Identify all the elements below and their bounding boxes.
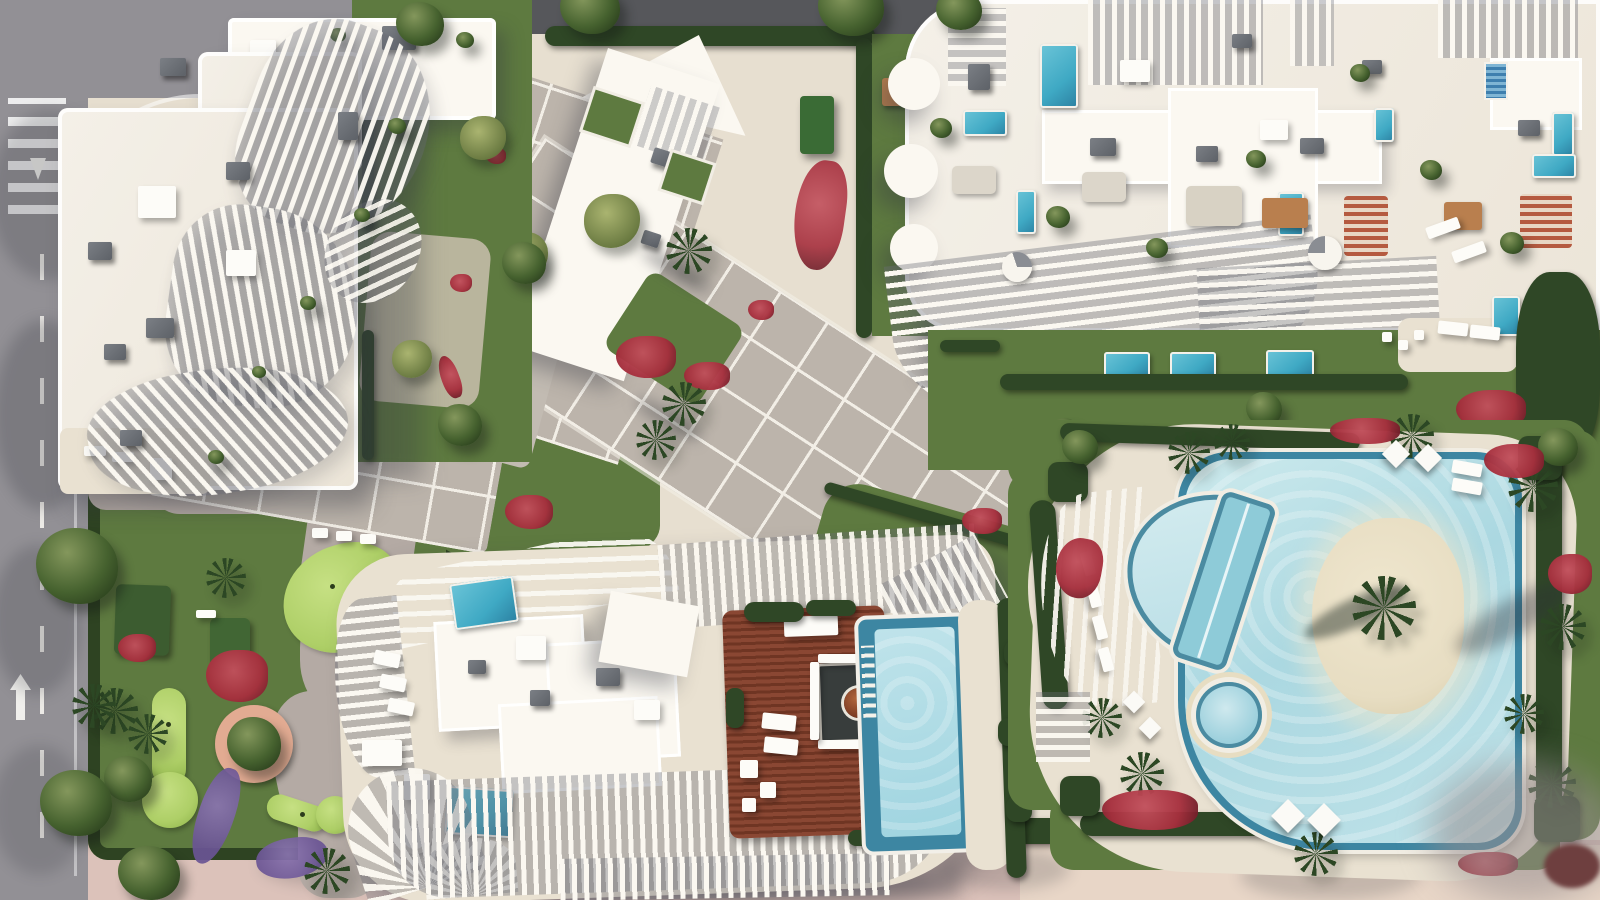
- palm-tree: [206, 558, 246, 598]
- lounge-rug: [1186, 186, 1242, 226]
- terracotta-rug: [1344, 196, 1388, 256]
- roof-cube: [138, 186, 176, 218]
- tree: [1538, 428, 1578, 466]
- terrace-plant: [930, 118, 952, 138]
- plunge-pool: [1532, 154, 1576, 178]
- roof-vent-box: [1232, 34, 1252, 48]
- terrace-plant: [1046, 206, 1070, 228]
- road-arrow: [16, 688, 25, 720]
- roof-vent-box: [1300, 138, 1324, 154]
- plunge-pool: [1552, 112, 1574, 156]
- lounger: [312, 528, 328, 538]
- palm-tree: [666, 228, 712, 274]
- island-palm-tree: [1352, 576, 1416, 640]
- roof-block: [598, 591, 699, 678]
- deck-sofa: [810, 662, 819, 740]
- roof-vent-box: [104, 344, 126, 360]
- roof-cube: [634, 700, 660, 720]
- balcony-plant: [252, 366, 266, 378]
- roof-vent-box: [88, 242, 112, 260]
- lounger: [761, 712, 796, 731]
- flower-bed-red: [206, 650, 268, 702]
- louver-band: [560, 853, 891, 900]
- roof-vent-box: [596, 668, 620, 686]
- palm-tree: [304, 848, 350, 894]
- water-caustics: [874, 627, 961, 838]
- spiral-stair: [1308, 236, 1342, 270]
- lounger: [360, 534, 376, 544]
- plunge-pool: [1016, 190, 1036, 234]
- outdoor-dining-table: [1262, 198, 1308, 228]
- plunge-pool: [1040, 44, 1078, 108]
- tree: [438, 404, 482, 446]
- hedge-strip: [856, 38, 872, 338]
- outdoor-sofa: [1082, 172, 1126, 202]
- terracotta-rug: [1520, 194, 1572, 248]
- roof-cube: [516, 636, 546, 660]
- golf-hole: [330, 584, 335, 589]
- plunge-pool: [449, 576, 519, 630]
- pouf: [742, 798, 756, 812]
- roof-vent-box: [226, 162, 250, 180]
- roof-cube: [1120, 60, 1150, 82]
- plunge-pool: [1374, 108, 1394, 142]
- palm-tree: [1214, 424, 1250, 460]
- terrace-plant: [1500, 232, 1524, 254]
- golf-hole: [300, 812, 305, 817]
- planter-tree: [227, 717, 281, 771]
- garden-steps: [1036, 692, 1090, 762]
- red-bush: [1544, 844, 1600, 888]
- tree: [104, 756, 152, 802]
- balcony-plant: [208, 450, 224, 464]
- roof-vent-box: [146, 318, 174, 338]
- hedge-strip: [940, 340, 1000, 352]
- deck-pool: [858, 616, 974, 852]
- hedge-blob: [1060, 776, 1100, 816]
- palm-tree: [128, 714, 168, 754]
- flower-bed-red: [748, 300, 774, 320]
- roof-vent-box: [968, 64, 990, 90]
- palm-tree: [1168, 432, 1210, 474]
- green-pergola: [800, 96, 834, 154]
- terrace-plant: [1350, 64, 1370, 82]
- street-palm: [72, 684, 116, 728]
- terrace-plant: [1146, 238, 1168, 258]
- flower-bed-red: [1330, 418, 1400, 444]
- flower-bed-red: [505, 495, 553, 529]
- spa-pool: [1196, 682, 1262, 748]
- flower-bed-red: [450, 274, 472, 292]
- flower-bed-red: [118, 634, 156, 662]
- roof-vent-box: [468, 660, 486, 674]
- pouf: [740, 760, 758, 778]
- roof-vent-box: [1518, 120, 1540, 136]
- spiral-stair: [1002, 252, 1032, 282]
- palm-tree: [1504, 694, 1544, 734]
- terrace-plant: [1420, 160, 1442, 180]
- jacuzzi: [1484, 62, 1508, 100]
- bench: [196, 610, 216, 618]
- pergola-slats: [1438, 0, 1578, 58]
- roof-vent-box: [1090, 138, 1116, 156]
- roof-vent-box: [1196, 146, 1218, 162]
- plunge-pool: [963, 110, 1007, 136]
- pouf: [760, 782, 776, 798]
- hedge-strip: [1000, 374, 1408, 390]
- terrace-plant: [456, 32, 474, 48]
- street-tree: [118, 846, 180, 900]
- tree: [502, 242, 546, 284]
- roof-vent-box: [530, 690, 550, 706]
- roof-cube: [226, 250, 256, 276]
- lounger: [763, 736, 798, 755]
- pool-steps: [861, 645, 877, 717]
- balcony-plant: [300, 296, 316, 310]
- flower-bed-red: [1548, 554, 1592, 594]
- street-tree: [40, 770, 112, 836]
- deck-planting: [806, 600, 856, 616]
- flower-bed-red: [1102, 790, 1198, 830]
- garden-chair: [1382, 332, 1392, 342]
- flower-bed-red: [962, 508, 1002, 534]
- balcony-plant: [388, 118, 406, 134]
- lounger: [336, 531, 352, 541]
- roof-vent-box: [338, 112, 358, 140]
- garden-chair: [1414, 330, 1424, 340]
- palm-tree: [662, 382, 706, 426]
- flower-bed-red: [616, 336, 676, 378]
- flower-bed-red: [1484, 444, 1544, 478]
- pergola-slats: [1290, 0, 1334, 66]
- outdoor-sofa: [952, 166, 996, 194]
- terrace-plant: [1246, 150, 1266, 168]
- aerial-site-render: [0, 0, 1600, 900]
- tree: [1062, 430, 1098, 464]
- deck-planting: [744, 602, 804, 622]
- street-tree: [36, 528, 118, 604]
- flower-bed-red: [788, 157, 853, 273]
- deck-planting: [726, 688, 744, 728]
- balcony-plant: [354, 208, 370, 222]
- street-tree: [396, 2, 444, 46]
- palm-tree: [636, 420, 676, 460]
- outdoor-dining-table: [362, 740, 402, 766]
- roof-cube: [1260, 120, 1288, 140]
- roof-vent-box: [160, 58, 186, 76]
- roof-vent-box: [120, 430, 142, 446]
- balcony-scallop: [888, 58, 940, 110]
- palm-tree: [1294, 832, 1338, 876]
- palm-tree: [1540, 604, 1586, 650]
- balcony-scallop: [884, 144, 938, 198]
- garden-chair: [1398, 340, 1408, 350]
